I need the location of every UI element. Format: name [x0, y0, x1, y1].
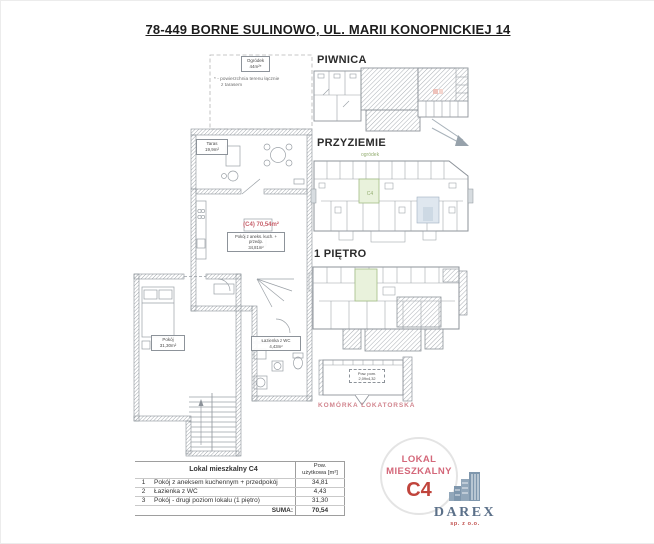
bedroom-label-box: Pokój 31,30m² [151, 335, 185, 351]
table-row: 2 Łazienka z WC 4,43 [135, 488, 345, 497]
storage-label: KOMÓRKA LOKATORSKA [318, 402, 415, 409]
suma-value: 70,54 [296, 506, 345, 516]
page-title: 78-449 BORNE SULINOWO, UL. MARII KONOPNI… [1, 22, 654, 37]
garden-label-box: Ogródek 44m²* [241, 56, 270, 72]
first-floor-plan-drawing [309, 257, 471, 357]
floor-label-piwnica: PIWNICA [317, 54, 367, 66]
floor-label-pietro: 1 PIĘTRO [314, 248, 367, 260]
ground-floor-plan-drawing [311, 149, 473, 245]
table-header-name: Lokal mieszkalny C4 [152, 462, 296, 479]
darex-logo: DAREX sp. z o.o. [421, 471, 509, 527]
bathroom-label-box: Łazienka z WC 4,43m² [251, 336, 301, 351]
floor-label-przyziemie: PRZYZIEMIE [317, 137, 386, 149]
room1-label: Pokój z aneks. kuch. + przedp. [229, 234, 283, 245]
bathroom-area: 4,43m² [253, 344, 299, 350]
unit-area-label: (C4) 70,54m² [230, 222, 292, 228]
garden-area: 44m²* [243, 64, 268, 70]
area-table: Lokal mieszkalny C4 Pow. użytkowa [m²] 1… [135, 461, 345, 516]
buildings-icon [447, 471, 483, 502]
logo-subtitle: sp. z o.o. [421, 521, 509, 527]
room1-label-box: Pokój z aneks. kuch. + przedp. 34,81m² [227, 232, 285, 252]
terrace-area: 19,9m² [198, 147, 226, 153]
logo-name: DAREX [421, 505, 509, 521]
table-header-row: Lokal mieszkalny C4 Pow. użytkowa [m²] [135, 462, 345, 479]
table-row: 3 Pokój - drugi poziom lokalu (1 piętro)… [135, 497, 345, 506]
badge-line1: LOKAL [382, 454, 456, 466]
floorplan-sheet: 78-449 BORNE SULINOWO, UL. MARII KONOPNI… [0, 0, 654, 544]
table-header-area: Pow. użytkowa [m²] [296, 462, 345, 479]
ogrodek-text: ogródek [361, 152, 379, 158]
room1-area: 34,81m² [229, 245, 283, 250]
terrace-label-box: Taras 19,9m² [196, 139, 228, 155]
table-suma-row: SUMA: 70,54 [135, 506, 345, 516]
suma-label: SUMA: [152, 506, 296, 516]
garden-note: * - powierzchnia terenu łącznie z tarase… [214, 77, 304, 90]
table-row: 1 Pokój z aneksem kuchennym + przedpokój… [135, 479, 345, 488]
unit-plan-drawing [126, 51, 321, 463]
c4-cell-label: C4 [360, 191, 380, 197]
bedroom-area: 31,30m² [153, 343, 183, 349]
storage-dim-box: Pow. pom. 2,09x4,32 [349, 369, 385, 383]
